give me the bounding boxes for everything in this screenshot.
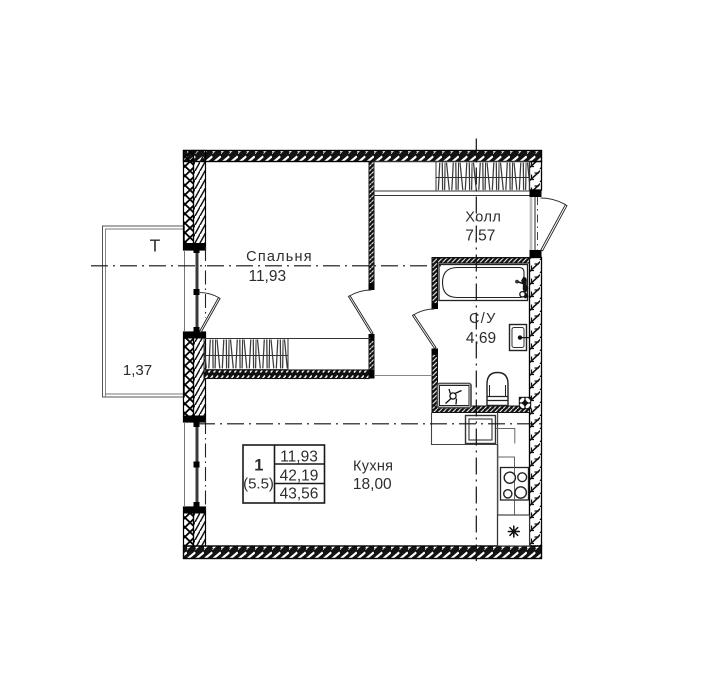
svg-text:11,93: 11,93 — [280, 449, 318, 466]
svg-text:18,00: 18,00 — [353, 476, 392, 493]
svg-text:Спальня: Спальня — [246, 249, 313, 265]
svg-text:1: 1 — [254, 457, 263, 475]
svg-text:Т: Т — [150, 236, 161, 256]
svg-text:С/У: С/У — [469, 311, 497, 327]
svg-text:42,19: 42,19 — [280, 468, 319, 485]
svg-text:(5.5): (5.5) — [243, 476, 274, 493]
svg-text:Кухня: Кухня — [353, 458, 393, 474]
svg-text:4,69: 4,69 — [466, 330, 496, 347]
svg-text:43,56: 43,56 — [280, 486, 319, 503]
svg-text:7,57: 7,57 — [465, 228, 495, 245]
svg-text:11,93: 11,93 — [248, 268, 286, 285]
svg-text:1,37: 1,37 — [123, 362, 152, 379]
svg-text:Холл: Холл — [465, 209, 501, 225]
